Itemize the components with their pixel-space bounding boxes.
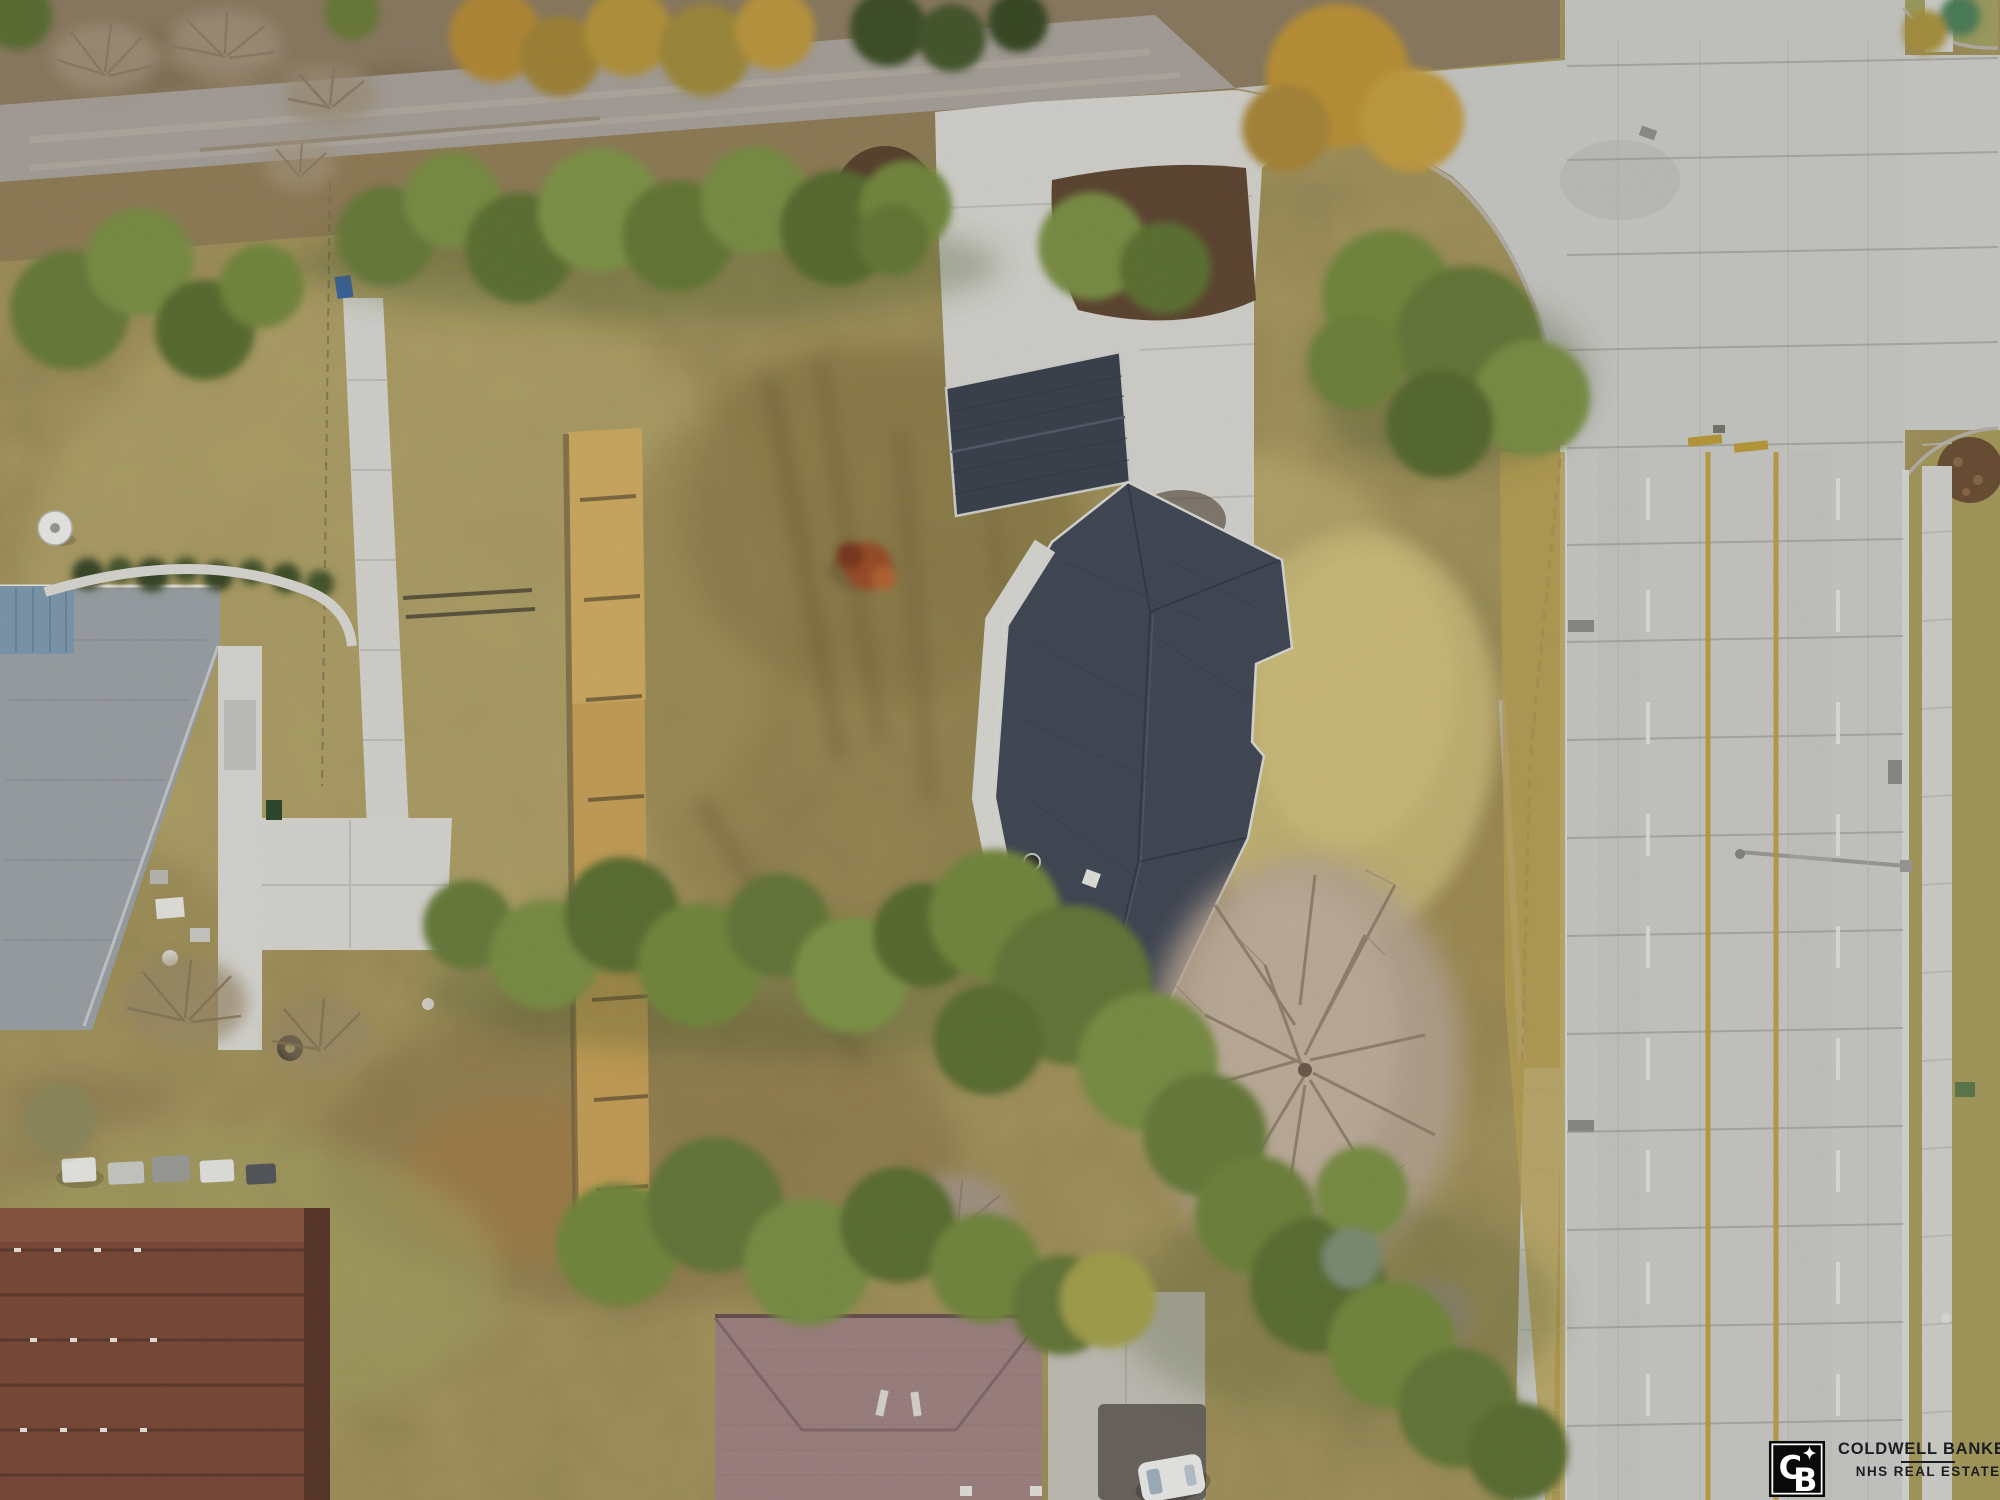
logo-letter-b: B [1793, 1461, 1817, 1498]
brokerage-name: NHS REAL ESTATE [1838, 1465, 2000, 1480]
watermark: C B COLDWELL BANKER NHS REAL ESTATE [1768, 1440, 2000, 1498]
watermark-text: COLDWELL BANKER NHS REAL ESTATE [1838, 1440, 2000, 1480]
aerial-photo: C B COLDWELL BANKER NHS REAL ESTATE [0, 0, 2000, 1500]
photo-grain [0, 0, 2000, 1500]
aerial-scene [0, 0, 2000, 1500]
brand-divider [1901, 1461, 1955, 1463]
coldwell-banker-logo: C B [1768, 1440, 1826, 1498]
cb-logo-svg: C B [1768, 1440, 1826, 1498]
brand-name: COLDWELL BANKER [1838, 1440, 2000, 1458]
